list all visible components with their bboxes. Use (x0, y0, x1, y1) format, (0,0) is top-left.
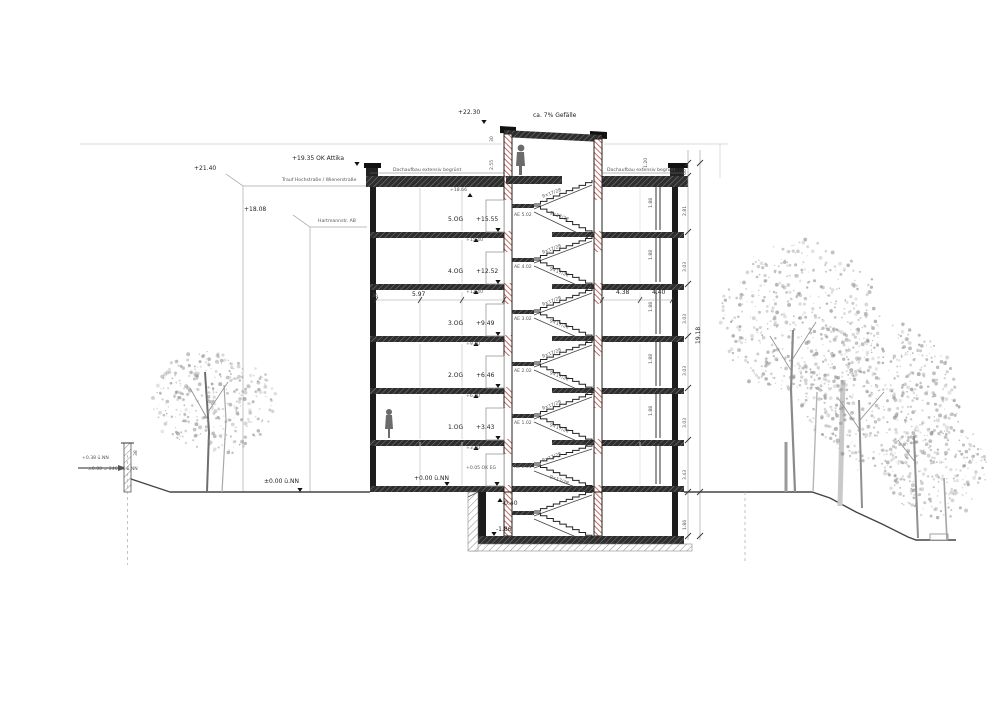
section-linework (0, 0, 1000, 708)
section-drawing-canvas: +22.30ca. 7% Gefälle302.55+19.35 OK Atti… (0, 0, 1000, 708)
